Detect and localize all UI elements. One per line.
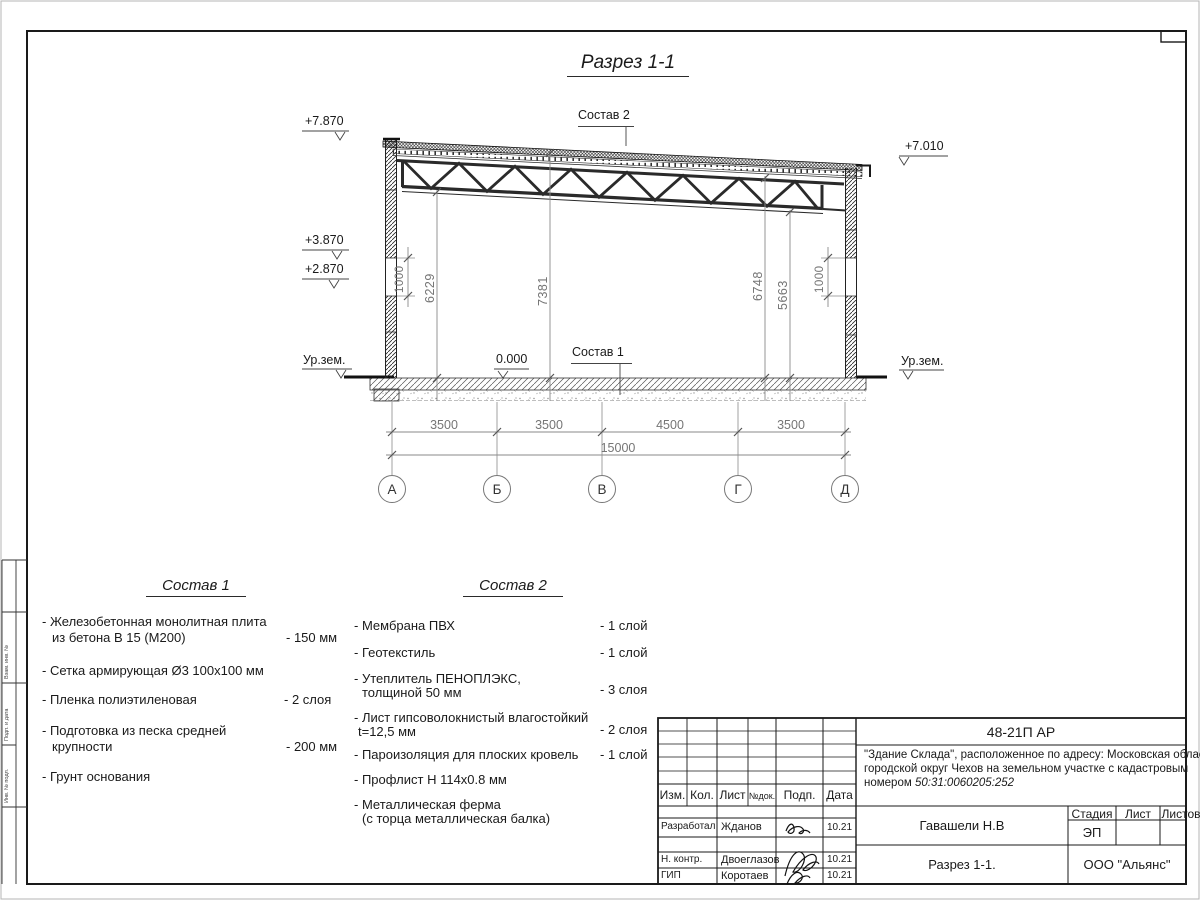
- row-date: 10.21: [823, 854, 856, 866]
- building-section: [344, 139, 887, 401]
- sostav2-item: t=12,5 мм: [358, 724, 416, 740]
- sostav2-ref-label: Состав 2: [578, 108, 630, 123]
- axis-bubble-b: Б: [483, 482, 511, 498]
- sostav1-item-value: - 150 мм: [286, 630, 337, 646]
- sostav2-item-value: - 1 слой: [600, 618, 648, 634]
- sostav2-item: (с торца металлическая балка): [362, 811, 550, 827]
- elevation-mid-left: +3.870: [305, 233, 344, 248]
- sostav1-item-value: - 200 мм: [286, 739, 337, 755]
- sostav1-title: Состав 1: [146, 577, 246, 597]
- row-name: Жданов: [721, 821, 762, 834]
- drawing-sheet: Разрез 1-1 Состав 2 Состав 1 0.000 +7.87…: [0, 0, 1200, 900]
- elevation-top-left: +7.870: [305, 114, 344, 129]
- dim-band-right: 1000: [814, 265, 828, 293]
- sostav1-item: крупности: [52, 739, 112, 755]
- dim-h4: 5663: [776, 280, 791, 310]
- col-header-izm: Изм.: [658, 788, 687, 802]
- sostav2-item: толщиной 50 мм: [362, 685, 462, 701]
- sostav2-item-value: - 3 слоя: [600, 682, 647, 698]
- axis-bubble-v: В: [588, 482, 616, 498]
- sheets-label: Листов: [1156, 807, 1200, 821]
- sostav1-item-value: - 2 слоя: [284, 692, 331, 708]
- col-header-podp: Подп.: [776, 788, 823, 802]
- signature-nkontr: [785, 852, 819, 876]
- sostav1-item: - Пленка полиэтиленовая: [42, 692, 197, 708]
- dim-total: 15000: [583, 441, 653, 456]
- sostav1-item: из бетона В 15 (М200): [52, 630, 186, 646]
- row-role: Разработал: [661, 821, 715, 833]
- axis-bubble-g: Г: [724, 482, 752, 498]
- signature-gip: [787, 872, 810, 884]
- dim-span-3: 4500: [640, 418, 700, 433]
- col-header-list: Лист: [717, 788, 748, 802]
- sostav2-item: - Мембрана ПВХ: [354, 618, 455, 634]
- doc-number: 48-21П АР: [951, 724, 1091, 741]
- row-role: Н. контр.: [661, 854, 702, 866]
- project-description-line3: номером 50:31:0060205:252: [864, 777, 1014, 791]
- sheet-title: Разрез 1-1.: [892, 857, 1032, 873]
- sostav1-item: - Железобетонная монолитная плита: [42, 614, 267, 630]
- sostav1-item: - Подготовка из песка средней: [42, 723, 226, 739]
- side-stamp-cell: Взам. инв. №: [4, 645, 11, 679]
- signature-razrabotal: [786, 824, 810, 834]
- axis-bubble-a: А: [378, 482, 406, 498]
- axis-bubble-d: Д: [831, 482, 859, 498]
- dim-span-2: 3500: [519, 418, 579, 433]
- side-stamp-cell: Подп. и дата: [4, 709, 11, 741]
- sostav1-item: - Сетка армирующая Ø3 100х100 мм: [42, 663, 264, 679]
- sostav2-title: Состав 2: [463, 577, 563, 597]
- col-header-kol: Кол.: [687, 788, 717, 802]
- project-description-line2: городской округ Чехов на земельном участ…: [864, 763, 1188, 777]
- dim-span-1: 3500: [414, 418, 474, 433]
- sostav2-item: - Геотекстиль: [354, 645, 435, 661]
- row-role: ГИП: [661, 870, 681, 882]
- company-name: ООО "Альянс": [1067, 857, 1187, 873]
- cadastral-number: 50:31:0060205:252: [915, 777, 1014, 789]
- side-stamp-cell: Инв. № подл.: [4, 769, 11, 803]
- sostav2-item-value: - 1 слой: [600, 747, 648, 763]
- stage-label: Стадия: [1068, 807, 1116, 821]
- col-header-data: Дата: [823, 788, 856, 802]
- dim-span-4: 3500: [761, 418, 821, 433]
- signatures: [785, 824, 819, 884]
- zero-level-label: 0.000: [496, 352, 527, 367]
- row-date: 10.21: [823, 870, 856, 882]
- elevation-top-right: +7.010: [905, 139, 944, 154]
- dim-h1: 6229: [423, 273, 438, 303]
- sostav1-ref-label: Состав 1: [572, 345, 624, 360]
- drawing-title: Разрез 1-1: [567, 52, 689, 77]
- sostav2-item-value: - 2 слоя: [600, 722, 647, 738]
- dim-h3: 6748: [751, 271, 766, 301]
- col-header-ndok: №док.: [748, 791, 776, 802]
- dim-h2: 7381: [536, 276, 551, 306]
- cadastral-prefix: номером: [864, 777, 915, 789]
- sostav2-item: - Профлист Н 114х0.8 мм: [354, 772, 507, 788]
- row-date: 10.21: [823, 822, 856, 834]
- sostav2-item: - Пароизоляция для плоских кровель: [354, 747, 578, 763]
- dim-band-left: 1000: [394, 265, 408, 293]
- ground-level-right: Ур.зем.: [901, 354, 943, 369]
- chief-name: Гавашели Н.В: [892, 818, 1032, 834]
- sheet-label: Лист: [1116, 807, 1160, 821]
- elevation-low-left: +2.870: [305, 262, 344, 277]
- sostav2-item-value: - 1 слой: [600, 645, 648, 661]
- sostav1-item: - Грунт основания: [42, 769, 150, 785]
- project-description-line1: "Здание Склада", расположенное по адресу…: [864, 749, 1200, 763]
- stage-value: ЭП: [1068, 825, 1116, 841]
- ground-level-left: Ур.зем.: [303, 353, 345, 368]
- row-name: Коротаев: [721, 870, 769, 883]
- row-name: Двоеглазов: [721, 854, 779, 867]
